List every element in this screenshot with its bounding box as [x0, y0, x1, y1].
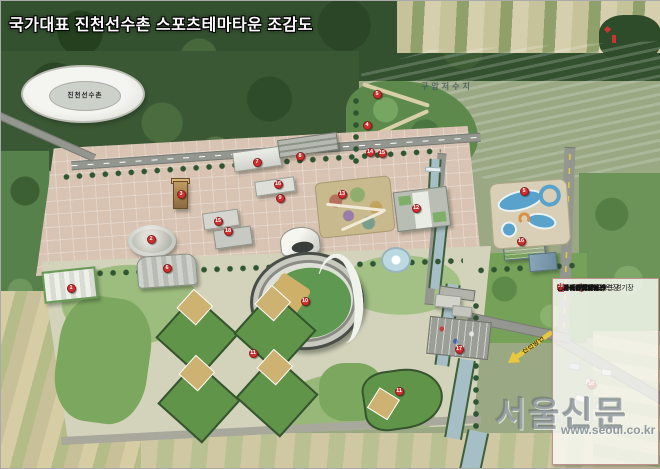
utility-mark [612, 35, 616, 43]
map-number-marker: 11 [395, 387, 404, 396]
map-number-marker: 14 [366, 148, 375, 157]
garden-path [326, 203, 386, 212]
pool [500, 221, 517, 238]
map-number-marker: 5 [520, 187, 529, 196]
map-number-marker: 5 [373, 90, 382, 99]
legend-item-label: 기존마을(62가구) [557, 282, 605, 292]
newspaper-url-watermark: www.seoul.co.kr [561, 423, 655, 437]
map-number-marker: 1 [67, 284, 76, 293]
roof-garden [398, 195, 411, 205]
tree-row [351, 96, 363, 166]
map-number-marker: 15 [378, 149, 387, 158]
map-number-marker: 7 [253, 158, 262, 167]
map-number-marker: 18 [224, 227, 233, 236]
garden-path [341, 210, 384, 231]
roof-garden [433, 211, 447, 223]
service-building-2 [451, 305, 472, 318]
athletes-village-label: 진천선수촌 [23, 89, 147, 99]
theme-garden [314, 175, 395, 239]
map-number-marker: 4 [363, 121, 372, 130]
outlet-mall-building [393, 186, 451, 232]
weir [425, 167, 441, 173]
map-number-marker: 17 [455, 345, 464, 354]
map-number-marker: 9 [276, 194, 285, 203]
fountain-plaza [381, 247, 411, 273]
map-number-marker: 16 [517, 237, 526, 246]
map-number-marker: 13 [338, 190, 347, 199]
map-number-marker: 2 [147, 235, 156, 244]
lazy-river [538, 184, 561, 207]
water-leisure-park [489, 178, 571, 249]
glass-building-small [528, 252, 557, 272]
map-number-marker: 15 [214, 217, 223, 226]
pool [525, 211, 557, 232]
page-title: 국가대표 진천선수촌 스포츠테마타운 조감도 [9, 11, 439, 35]
map-number-marker: 8 [296, 152, 305, 161]
map-number-marker: 11 [249, 349, 258, 358]
aerial-plan-map: 진천선수촌 [0, 0, 660, 469]
map-number-marker: 10 [301, 297, 310, 306]
map-number-marker: 12 [412, 204, 421, 213]
jincheon-athletes-village-stadium: 진천선수촌 [21, 65, 145, 123]
reservoir-label: 구암저수지 [421, 81, 473, 92]
map-number-marker: 3 [177, 190, 186, 199]
map-number-marker: 6 [163, 264, 172, 273]
map-number-marker: 16 [274, 180, 283, 189]
